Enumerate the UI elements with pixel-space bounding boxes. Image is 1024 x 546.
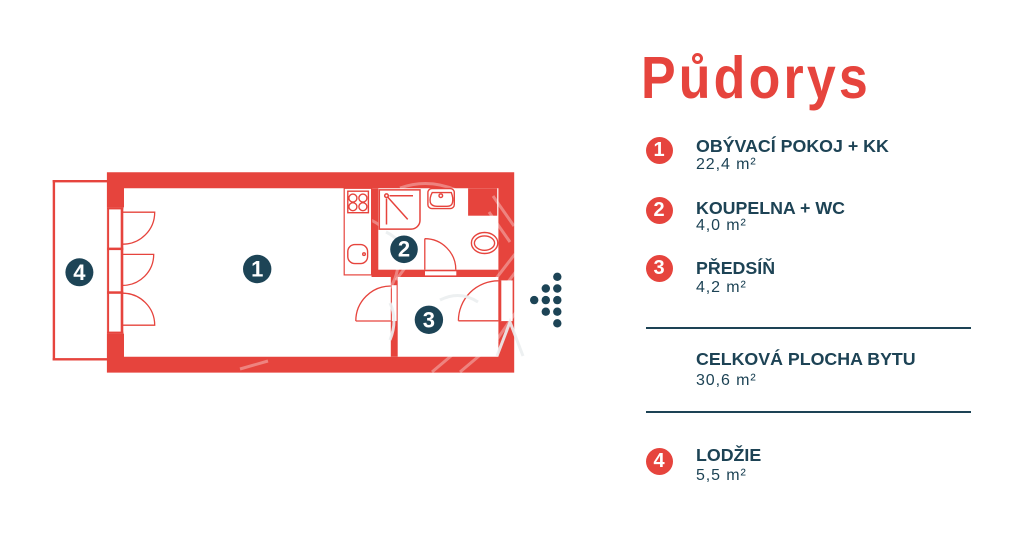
svg-text:4: 4 [73,260,86,285]
svg-text:2: 2 [398,237,410,262]
svg-text:3: 3 [423,307,435,332]
svg-text:1: 1 [251,257,263,282]
